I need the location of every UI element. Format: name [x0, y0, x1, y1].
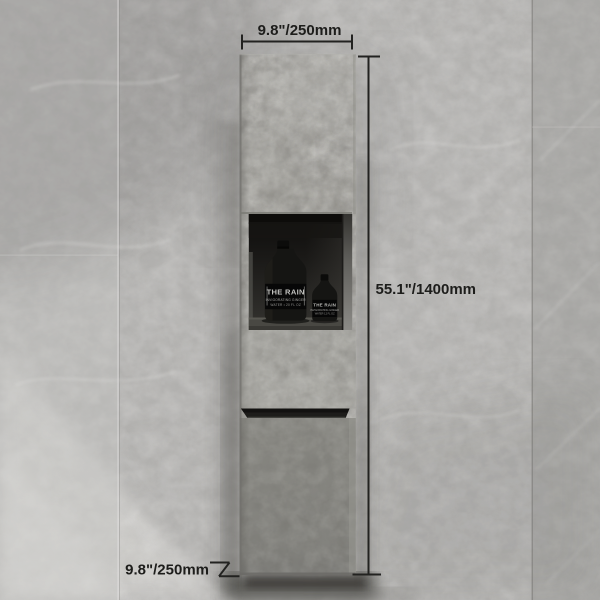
- svg-text:9.8"/250mm: 9.8"/250mm: [125, 562, 209, 579]
- svg-text:WATER 12 FL OZ: WATER 12 FL OZ: [315, 312, 335, 315]
- svg-text:INVIGORATING GINGER: INVIGORATING GINGER: [266, 298, 307, 302]
- svg-text:WATER • 20 FL OZ: WATER • 20 FL OZ: [270, 303, 301, 307]
- svg-text:9.8"/250mm: 9.8"/250mm: [258, 22, 342, 39]
- svg-text:THE RAIN: THE RAIN: [313, 303, 336, 308]
- svg-text:55.1"/1400mm: 55.1"/1400mm: [376, 281, 477, 298]
- svg-text:THE RAIN: THE RAIN: [267, 287, 305, 296]
